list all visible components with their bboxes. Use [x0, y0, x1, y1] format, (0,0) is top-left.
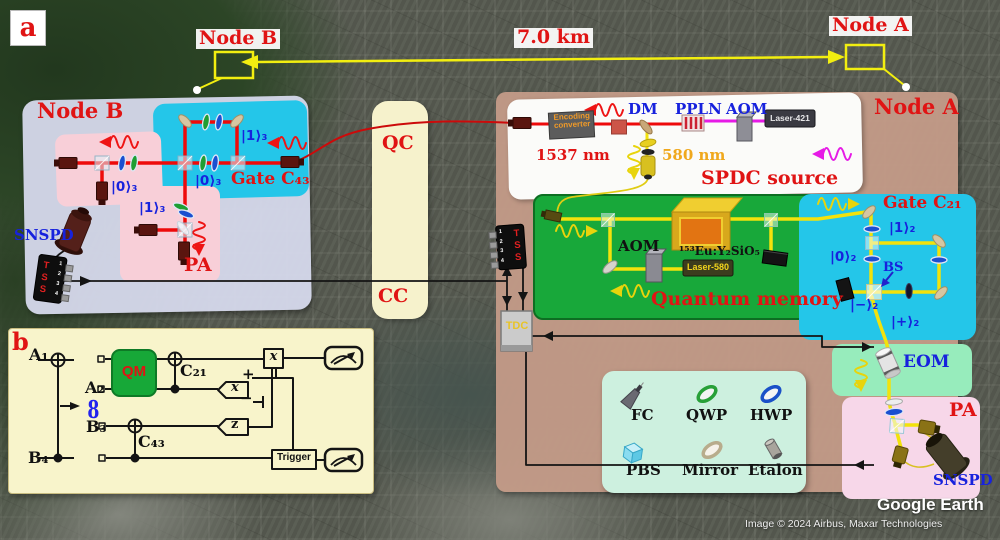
arrowhead-to-node-b	[241, 55, 258, 69]
figure-canvas: a Node B 7.0 km Node A Google Earth Imag…	[0, 0, 1000, 540]
aom-spdc-label: AOM	[726, 102, 767, 118]
bs-label: BS	[883, 261, 903, 275]
x-measurement-label: x	[231, 381, 239, 395]
legend-hwp: HWP	[750, 408, 792, 424]
node-a-title: Node A	[874, 96, 959, 118]
ppln-label: PPLN	[675, 102, 722, 118]
arrowhead-to-node-a	[828, 50, 845, 64]
plus-outcome: +	[242, 367, 255, 383]
node-b-title: Node B	[37, 100, 123, 122]
laser-580-label: Laser-580	[684, 263, 732, 272]
eom-panel	[832, 344, 972, 396]
panel-a-label: a	[10, 10, 46, 46]
snspd-a-label: SNSPD	[933, 473, 993, 489]
imagery-credit: Image © 2024 Airbus, Maxar Technologies	[745, 519, 942, 530]
c21-gate-label: C₂₁	[180, 363, 207, 380]
spdc-title: SPDC source	[701, 169, 838, 189]
circuit-panel	[8, 328, 374, 494]
state-plus-c21: |+⟩₂	[891, 315, 919, 329]
laser-421-label: Laser-421	[766, 114, 814, 123]
legend-etalon: Etalon	[748, 463, 803, 479]
pa-a-label: PA	[949, 401, 977, 421]
gate-c21-title: Gate C₂₁	[883, 195, 962, 213]
tss-a-label: TSS	[511, 228, 523, 265]
legend-qwp: QWP	[686, 408, 727, 424]
x-correction-label: x	[268, 350, 279, 364]
z-measurement-label: z	[231, 418, 238, 432]
map-distance-label: 7.0 km	[514, 28, 593, 48]
state-0-pa: |0⟩₃	[111, 180, 137, 194]
panel-b-label: b	[12, 329, 29, 354]
state-1-c21: |1⟩₂	[889, 221, 915, 235]
state-1-top: |1⟩₃	[241, 129, 267, 143]
trigger-label: Trigger	[273, 453, 315, 464]
node-b-site-dot	[193, 86, 201, 94]
qm-gate-label: QM	[118, 364, 150, 380]
map-node-a-label: Node A	[829, 16, 912, 36]
legend-pbs: PBS	[626, 463, 661, 479]
c43-gate-label: C₄₃	[138, 434, 165, 451]
state-minus-c21: |−⟩₂	[850, 298, 878, 312]
minus-outcome: −	[240, 391, 253, 407]
state-1-pa: |1⟩₃	[139, 201, 165, 215]
aom-qm-label: AOM	[618, 239, 659, 255]
state-0-gate: |0⟩₃	[195, 174, 221, 188]
wavelength-580: 580 nm	[662, 148, 725, 164]
snspd-b-label: SNSPD	[14, 228, 74, 244]
node-a-map-box	[846, 45, 884, 69]
node-a-site-dot	[902, 83, 910, 91]
qubit-a1: A₁	[29, 347, 48, 364]
legend-fc: FC	[631, 408, 654, 424]
qc-label: QC	[382, 134, 414, 154]
state-0-c21: |0⟩₂	[830, 250, 856, 264]
node-b-map-box	[215, 52, 253, 78]
eom-label: EOM	[903, 354, 950, 372]
gate-c43-title: Gate C₄₃	[231, 171, 310, 189]
legend-mirror: Mirror	[682, 463, 738, 479]
wavelength-1537: 1537 nm	[536, 148, 610, 164]
quantum-memory-title: Quantum memory	[651, 290, 843, 310]
map-node-b-label: Node B	[196, 29, 280, 49]
qubit-b4: B₄	[28, 450, 49, 467]
encoding-converter-label: Encodingconverter	[546, 112, 599, 131]
google-earth-watermark: Google Earth	[877, 496, 984, 514]
map-annotations	[193, 45, 910, 94]
pa-b-label: PA	[184, 256, 212, 276]
dm-label: DM	[628, 102, 658, 118]
entangle-symbol: 8	[87, 397, 99, 422]
crystal-label: ¹⁵³Eu:Y₂SiO₅	[679, 245, 760, 258]
cc-label: CC	[378, 287, 408, 307]
tdc-label: TDC	[502, 321, 532, 333]
